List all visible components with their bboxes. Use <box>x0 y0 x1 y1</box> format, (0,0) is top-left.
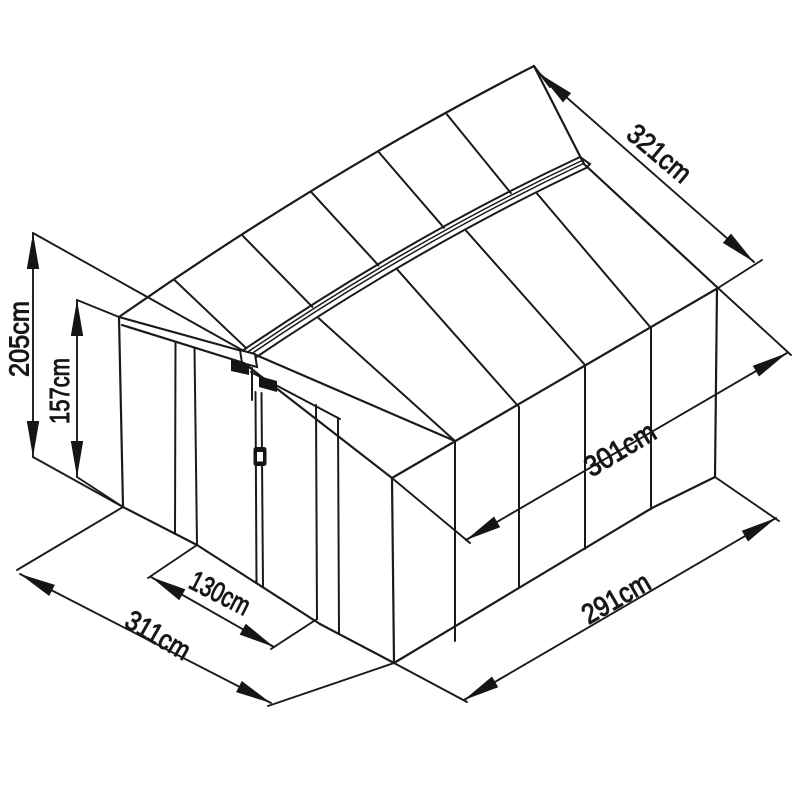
svg-text:291cm: 291cm <box>576 566 656 630</box>
svg-text:130cm: 130cm <box>184 565 255 622</box>
svg-text:301cm: 301cm <box>579 416 662 484</box>
svg-text:311cm: 311cm <box>120 604 196 666</box>
svg-text:157cm: 157cm <box>44 358 75 424</box>
svg-text:205cm: 205cm <box>3 301 34 377</box>
